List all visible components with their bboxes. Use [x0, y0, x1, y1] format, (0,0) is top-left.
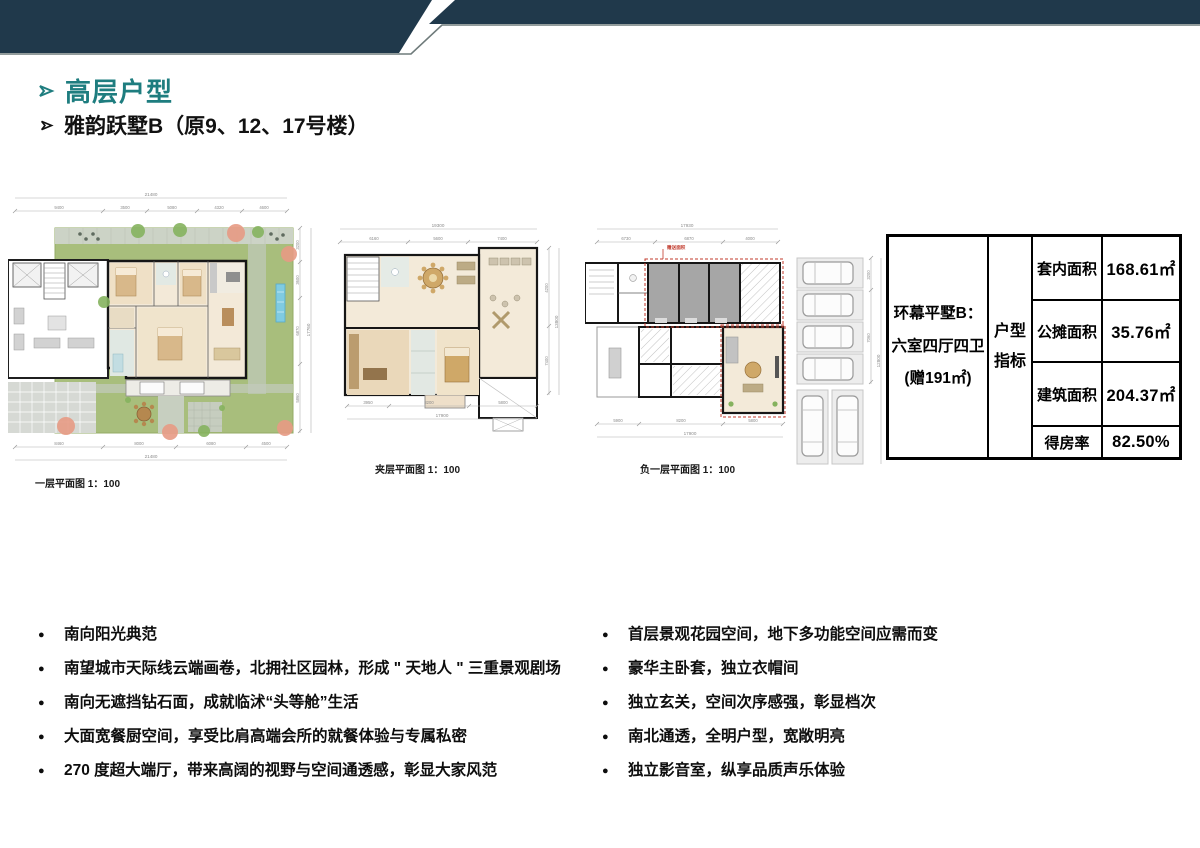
svg-text:3500: 3500: [120, 205, 130, 210]
list-item: 270 度超大端厅，带来高阔的视野与空间通透感，彰显大家风范: [38, 754, 583, 788]
section-title-row: 高层户型: [38, 72, 173, 109]
unit-name-line1: 环幕平墅B：: [894, 298, 983, 331]
unit-name-line3: (赠191㎡): [904, 363, 971, 396]
svg-text:7400: 7400: [544, 356, 549, 366]
svg-text:4500: 4500: [261, 441, 271, 446]
page-title: 高层户型: [65, 72, 173, 109]
plan-caption: 一层平面图 1：100: [35, 475, 120, 490]
svg-text:19300: 19300: [432, 223, 445, 228]
row-label: 建筑面积: [1032, 362, 1102, 426]
first-floor-plan-drawing: 21480 9400 3500 5080 4320 4600: [8, 188, 318, 488]
list-item: 南望城市天际线云端画卷，北拥社区园林，形成 " 天地人 " 三重景观剧场: [38, 652, 583, 686]
svg-text:6160: 6160: [369, 236, 379, 241]
svg-text:5860: 5860: [295, 393, 300, 403]
svg-text:6730: 6730: [621, 236, 631, 241]
svg-text:13800: 13800: [554, 315, 559, 328]
list-item: 大面宽餐厨空间，享受比肩高端会所的就餐体验与专属私密: [38, 720, 583, 754]
svg-text:21480: 21480: [145, 192, 158, 197]
svg-text:4600: 4600: [259, 205, 269, 210]
paved-plaza: [8, 382, 96, 433]
svg-text:6080: 6080: [206, 441, 216, 446]
row-label: 公摊面积: [1032, 300, 1102, 362]
svg-text:5800: 5800: [498, 400, 508, 405]
plan-caption: 负一层平面图 1：100: [640, 461, 735, 476]
svg-text:4000: 4000: [745, 236, 755, 241]
svg-text:8200: 8200: [676, 418, 686, 423]
svg-text:17760: 17760: [306, 323, 311, 336]
list-item: 独立影音室，纵享品质声乐体验: [602, 754, 1012, 788]
basement-rooms: [585, 263, 783, 413]
svg-text:3200: 3200: [295, 240, 300, 250]
unit-name-cell: 环幕平墅B： 六室四厅四卫 (赠191㎡): [888, 236, 988, 458]
list-item: 南向无遮挡钻石面，成就临沭“头等舱”生活: [38, 686, 583, 720]
svg-text:赠送面积: 赠送面积: [667, 244, 686, 251]
first-floor-plan: 21480 9400 3500 5080 4320 4600: [8, 188, 320, 493]
svg-text:4200: 4200: [544, 283, 549, 293]
svg-text:21480: 21480: [145, 454, 158, 459]
arrow-icon: [40, 118, 54, 133]
svg-text:5800: 5800: [748, 418, 758, 423]
svg-text:5600: 5600: [433, 236, 443, 241]
mezzanine-rooms: [345, 248, 537, 431]
list-item: 独立玄关，空间次序感强，彰显档次: [602, 686, 1012, 720]
svg-text:8460: 8460: [54, 441, 64, 446]
row-value: 204.37㎡: [1102, 362, 1180, 426]
bonus-gray-rooms: [648, 263, 740, 323]
row-value: 35.76㎡: [1102, 300, 1180, 362]
feature-list-left: 南向阳光典范 南望城市天际线云端画卷，北拥社区园林，形成 " 天地人 " 三重景…: [38, 618, 583, 788]
index-header-cell: 户型 指标: [988, 236, 1032, 458]
list-item: 南向阳光典范: [38, 618, 583, 652]
svg-text:7400: 7400: [497, 236, 507, 241]
svg-text:9400: 9400: [54, 205, 64, 210]
pool: [276, 284, 285, 322]
svg-text:17900: 17900: [436, 413, 449, 418]
header-band: [0, 0, 1200, 60]
svg-text:8000: 8000: [134, 441, 144, 446]
mezzanine-plan: 19300 6160 5600 7400: [333, 218, 565, 480]
svg-text:12800: 12800: [876, 354, 881, 367]
arrow-icon: [38, 82, 55, 100]
plan-caption: 夹层平面图 1：100: [375, 461, 460, 476]
list-item: 南北通透，全明户型，宽敞明亮: [602, 720, 1012, 754]
parking-spaces: [797, 258, 863, 464]
row-label: 得房率: [1032, 426, 1102, 458]
feature-list-right: 首层景观花园空间，地下多功能空间应需而变 豪华主卧套，独立衣帽间 独立玄关，空间…: [602, 618, 1012, 788]
svg-text:3600: 3600: [295, 275, 300, 285]
svg-text:5080: 5080: [167, 205, 177, 210]
svg-text:7060: 7060: [866, 333, 871, 343]
list-item: 首层景观花园空间，地下多功能空间应需而变: [602, 618, 1012, 652]
list-item: 豪华主卧套，独立衣帽间: [602, 652, 1012, 686]
svg-text:6870: 6870: [295, 326, 300, 336]
house-rooms: [108, 261, 246, 378]
header-band-left: [0, 0, 432, 53]
mezzanine-plan-drawing: 19300 6160 5600 7400: [333, 218, 563, 468]
garden-dining-set: [134, 402, 154, 426]
basement-plan: 17930 6730 6870 4000: [585, 218, 887, 480]
subtitle-row: 雅韵跃墅B（原9、12、17号楼）: [40, 110, 369, 140]
svg-text:17930: 17930: [681, 223, 694, 228]
unit-spec-table: 环幕平墅B： 六室四厅四卫 (赠191㎡) 户型 指标 套内面积 168.61㎡…: [886, 234, 1182, 460]
slide: 高层户型 雅韵跃墅B（原9、12、17号楼） 21480 9400 3500 5…: [0, 0, 1200, 848]
row-label: 套内面积: [1032, 236, 1102, 300]
svg-text:4320: 4320: [214, 205, 224, 210]
row-value: 168.61㎡: [1102, 236, 1180, 300]
svg-text:6870: 6870: [684, 236, 694, 241]
svg-text:8200: 8200: [424, 400, 434, 405]
header-band-right: [429, 0, 1200, 24]
svg-text:3950: 3950: [363, 400, 373, 405]
row-value: 82.50%: [1102, 426, 1180, 458]
svg-text:17900: 17900: [684, 431, 697, 436]
unit-subtitle: 雅韵跃墅B（原9、12、17号楼）: [64, 110, 369, 140]
unit-name-line2: 六室四厅四卫: [891, 331, 984, 364]
tower-core: [8, 260, 108, 378]
svg-text:5900: 5900: [613, 418, 623, 423]
svg-text:3200: 3200: [866, 270, 871, 280]
basement-plan-drawing: 17930 6730 6870 4000: [585, 218, 885, 468]
